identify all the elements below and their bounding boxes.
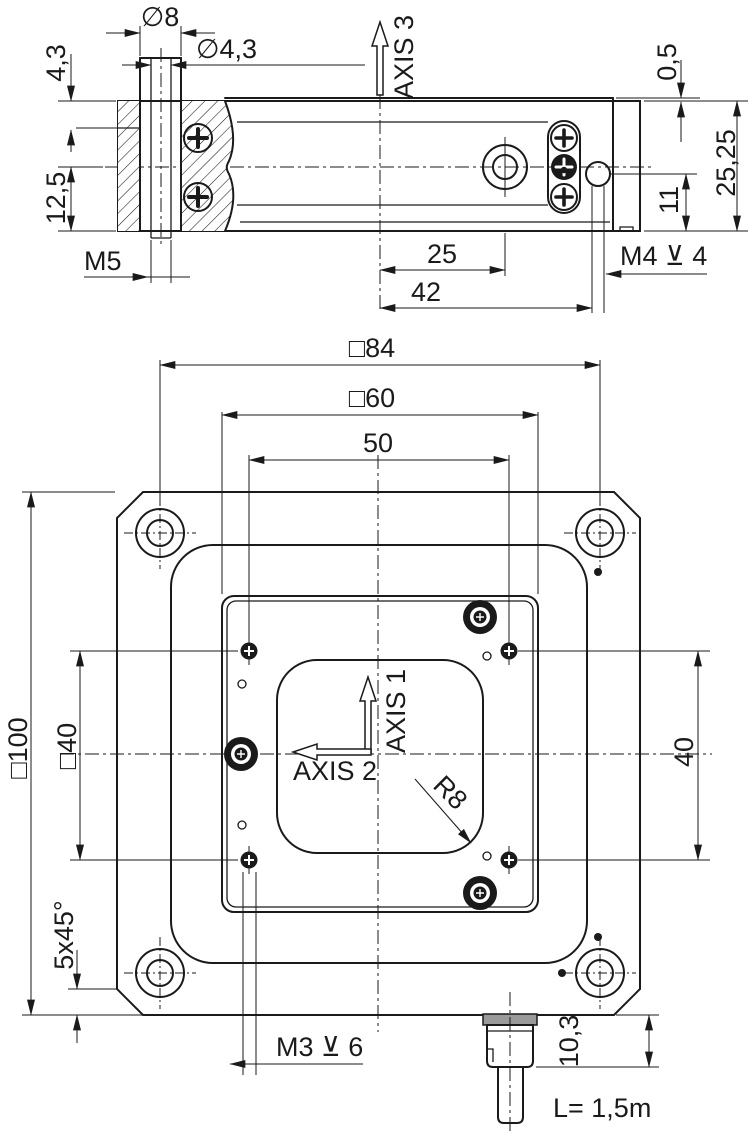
m3-screw-icon [501,846,518,874]
torx-screw-icon [463,600,497,634]
dim-m4-label: M4 ⊻ 4 [620,241,707,271]
dim-dia43-label: ∅4,3 [196,34,257,64]
access-hole-icon [483,652,491,660]
plan-view-dimensions: □84 □60 50 □100 □40 40 [3,333,710,1123]
corner-hole-icon [124,497,196,569]
corner-hole-icon [124,937,196,1009]
pin-dot-icon [558,969,566,977]
dim-103-label: 10,3 [554,1015,584,1068]
dim-m5-label: M5 [84,246,122,276]
dim-05-label: 0,5 [652,43,682,81]
side-view: AXIS 3 ∅8 ∅4,3 4,3 12,5 [41,2,748,313]
dim-25-label: 25 [427,239,457,269]
dim-40-label: 40 [669,737,699,767]
m3-screw-icon [241,846,258,874]
dim-125-label: 12,5 [41,172,71,225]
dim-sq100-label: □100 [3,717,33,778]
corner-hole-icon [564,937,636,1009]
dim-dia8-label: ∅8 [141,2,180,32]
dim-r8-label: R8 [428,770,474,816]
dim-sq60-label: □60 [349,383,395,413]
dim-m3-label: M3 ⊻ 6 [276,1032,363,1062]
axis2-label: AXIS 2 [293,756,377,786]
axis3-label: AXIS 3 [389,15,419,99]
engineering-drawing: AXIS 3 ∅8 ∅4,3 4,3 12,5 [0,0,750,1139]
phillips-screw-icon [551,184,577,210]
m3-screw-icon [501,637,518,665]
cable-length-label: L= 1,5m [553,1093,651,1123]
m4-hole-icon [586,162,610,186]
dim-42-label: 42 [411,277,441,307]
dim-chamfer-label: 5x45° [49,900,79,969]
drawing-canvas: AXIS 3 ∅8 ∅4,3 4,3 12,5 [0,0,750,1139]
section-hatch-left [118,101,140,231]
plan-view: AXIS 1 AXIS 2 R8 □84 □60 [3,333,712,1133]
locking-screw-icon [551,154,577,180]
access-hole-icon [238,821,246,829]
dim-11-label: 11 [654,186,684,214]
cable-connector [483,992,537,1133]
phillips-screw-icon [184,183,212,211]
pin-dot-icon [594,933,602,941]
dim-sq84-label: □84 [349,333,395,363]
torx-screw-icon [224,737,258,771]
section-hatch-wedge [181,101,233,231]
dim-sq40-label: □40 [52,723,82,769]
axis1-arrow-icon [360,677,376,753]
dim-50-label: 50 [363,428,393,458]
axis3-arrow-icon [372,22,388,95]
phillips-screw-icon [551,125,577,151]
phillips-screw-icon [184,124,212,152]
torx-screw-icon [463,876,497,910]
access-hole-icon [238,680,246,688]
access-hole-icon [483,852,491,860]
pin-dot-icon [594,568,602,576]
dim-43-label: 4,3 [41,44,71,82]
axis1-label: AXIS 1 [381,669,411,753]
m3-screw-icon [241,637,258,665]
dim-2525-label: 25,25 [711,129,741,197]
